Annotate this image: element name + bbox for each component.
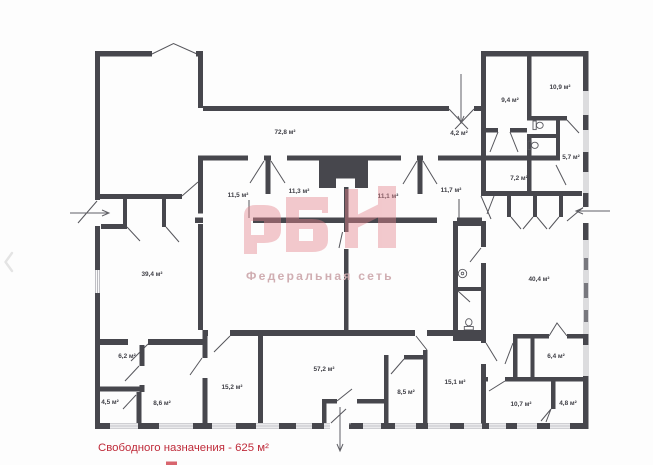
svg-text:9,4 м²: 9,4 м² [501, 97, 519, 104]
svg-text:57,2 м²: 57,2 м² [313, 366, 334, 373]
svg-text:4,8 м²: 4,8 м² [559, 400, 577, 407]
svg-text:15,1 м²: 15,1 м² [444, 379, 465, 386]
svg-text:4,2 м²: 4,2 м² [450, 130, 468, 137]
svg-text:8,6 м²: 8,6 м² [153, 400, 171, 407]
svg-text:10,9 м²: 10,9 м² [549, 84, 570, 91]
svg-text:4,5 м²: 4,5 м² [101, 399, 119, 406]
svg-text:6,4 м²: 6,4 м² [547, 353, 565, 360]
svg-text:11,3 м²: 11,3 м² [289, 188, 310, 195]
svg-text:Свободного назначения - 625 м²: Свободного назначения - 625 м² [98, 442, 269, 454]
svg-text:39,4 м²: 39,4 м² [141, 271, 162, 278]
svg-text:6,2 м²: 6,2 м² [118, 353, 136, 360]
svg-text:Федеральная сеть: Федеральная сеть [246, 269, 394, 283]
svg-text:11,7 м²: 11,7 м² [441, 187, 462, 194]
svg-text:11,5 м²: 11,5 м² [228, 192, 249, 199]
svg-text:7,2 м²: 7,2 м² [510, 175, 528, 182]
svg-text:72,8 м²: 72,8 м² [274, 129, 295, 136]
svg-text:10,7 м²: 10,7 м² [510, 401, 531, 408]
svg-text:8,5 м²: 8,5 м² [397, 389, 415, 396]
svg-text:15,2 м²: 15,2 м² [221, 384, 242, 391]
svg-text:5,7 м²: 5,7 м² [562, 154, 580, 161]
svg-text:40,4 м²: 40,4 м² [528, 276, 549, 283]
